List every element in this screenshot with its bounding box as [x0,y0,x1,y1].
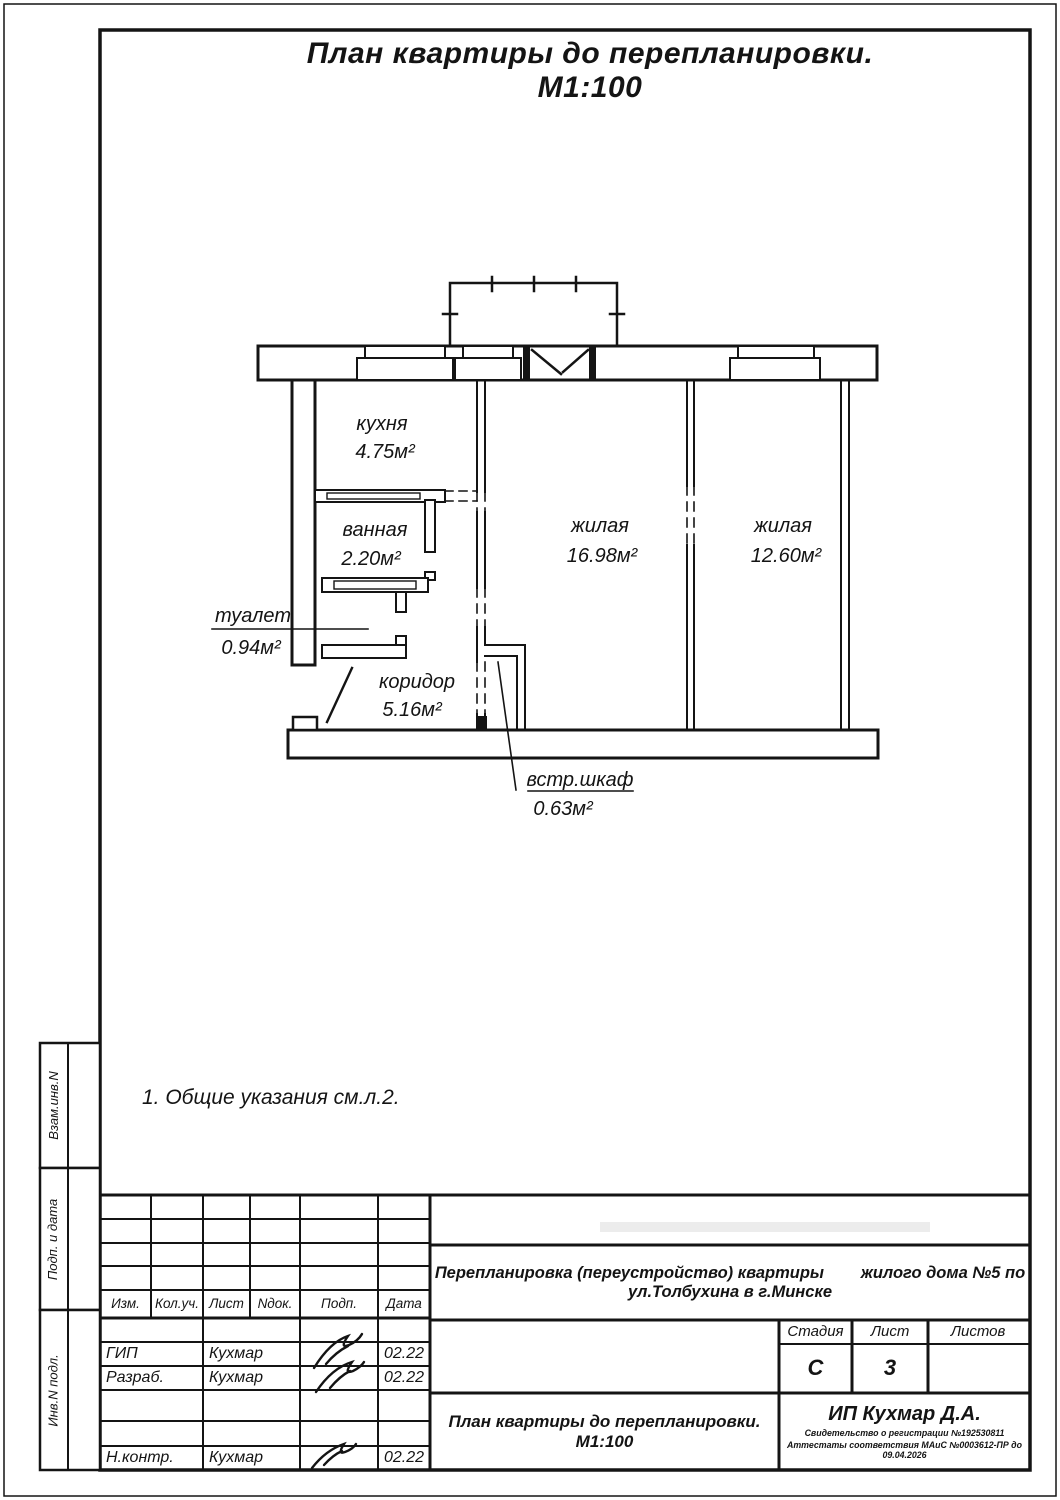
project-line1: Перепланировка (переустройство) квартиры… [435,1264,1025,1283]
doc-title-block: План квартиры до перепланировки. М1:100 [432,1395,777,1468]
room-area-toilet: 0.94м² [221,637,282,659]
col-list: Лист [203,1290,250,1318]
page-title: План квартиры до перепланировки. М1:100 [250,50,930,92]
room-area-living2: 12.60м² [751,545,823,567]
sidebar-item-vzam: Взам.инв.N [40,1043,68,1168]
project-name-block: Перепланировка (переустройство) квартиры… [432,1247,1028,1318]
sidebar-item-podp: Подп. и дата [40,1168,68,1310]
row-razrab-role: Разраб. [106,1366,201,1390]
room-area-closet: 0.63м² [533,798,594,820]
sheet-value: 3 [852,1344,928,1392]
stage-label: Стадия [779,1320,852,1344]
stage-value: С [779,1344,852,1392]
row-gip-name: Кухмар [209,1342,299,1366]
doc-line1: План квартиры до перепланировки. [449,1412,761,1432]
doc-line2: М1:100 [576,1432,634,1452]
room-label-corridor: коридор [379,671,455,693]
partition-living-living [687,380,694,730]
room-label-toilet: туалет [215,605,291,627]
entrance-door-leaf [327,668,352,722]
bottom-wall [288,730,878,758]
room-label-bathroom: ванная [343,519,408,541]
row-gip-role: ГИП [106,1342,201,1366]
col-izm: Изм. [100,1290,151,1318]
room-label-living2: жилая [753,515,812,537]
window-kitchen [357,346,453,380]
balcony-outline [443,277,624,346]
col-koluch: Кол.уч. [151,1290,203,1318]
company-cert1: Свидетельство о регистрации №192530811 [805,1428,1005,1438]
col-ndok: Nдок. [250,1290,300,1318]
room-label-closet: встр.шкаф [527,769,634,791]
sheets-value [928,1344,1028,1392]
row-nkontr-date: 02.22 [378,1446,430,1470]
general-note: 1. Общие указания см.л.2. [142,1086,400,1110]
sidebar-label-inv: Инв.N подл. [47,1354,62,1426]
sidebar-item-inv: Инв.N подл. [40,1310,68,1470]
company-cert2: Аттестаты соответствия МАиС №0003612-ПР … [781,1440,1028,1460]
sheets-label: Листов [928,1320,1028,1344]
col-data: Дата [378,1290,430,1318]
row-gip-date: 02.22 [378,1342,430,1366]
window-living2 [730,346,820,380]
row-nkontr-name: Кухмар [209,1446,299,1470]
company-name: ИП Кухмар Д.А. [828,1403,981,1426]
wet-zone-walls [315,490,477,658]
sheet-label: Лист [852,1320,928,1344]
row-nkontr-role: Н.контр. [106,1446,201,1470]
scan-artifact [600,1222,930,1232]
room-area-corridor: 5.16м² [382,699,443,721]
room-area-bathroom: 2.20м² [340,548,402,570]
row-razrab-name: Кухмар [209,1366,299,1390]
company-block: ИП Кухмар Д.А. Свидетельство о регистрац… [781,1395,1028,1468]
left-wall [292,380,315,665]
signatures [312,1334,364,1468]
signature-gip [314,1334,362,1368]
room-label-kitchen: кухня [356,413,407,435]
sidebar-label-podp: Подп. и дата [47,1198,62,1279]
window-living1 [455,346,521,380]
room-label-living1: жилая [570,515,629,537]
room-area-living1: 16.98м² [567,545,639,567]
row-razrab-date: 02.22 [378,1366,430,1390]
entrance-step [293,717,317,730]
room-area-kitchen: 4.75м² [355,441,416,463]
signature-nkontr [312,1444,356,1468]
right-wall [841,380,849,730]
project-line2: ул.Толбухина в г.Минске [628,1283,832,1302]
sidebar-label-vzam: Взам.инв.N [47,1071,62,1140]
drawing-sheet: кухня 4.75м² ванная 2.20м² туалет 0.94м²… [0,0,1060,1500]
col-podp: Подп. [300,1290,378,1318]
